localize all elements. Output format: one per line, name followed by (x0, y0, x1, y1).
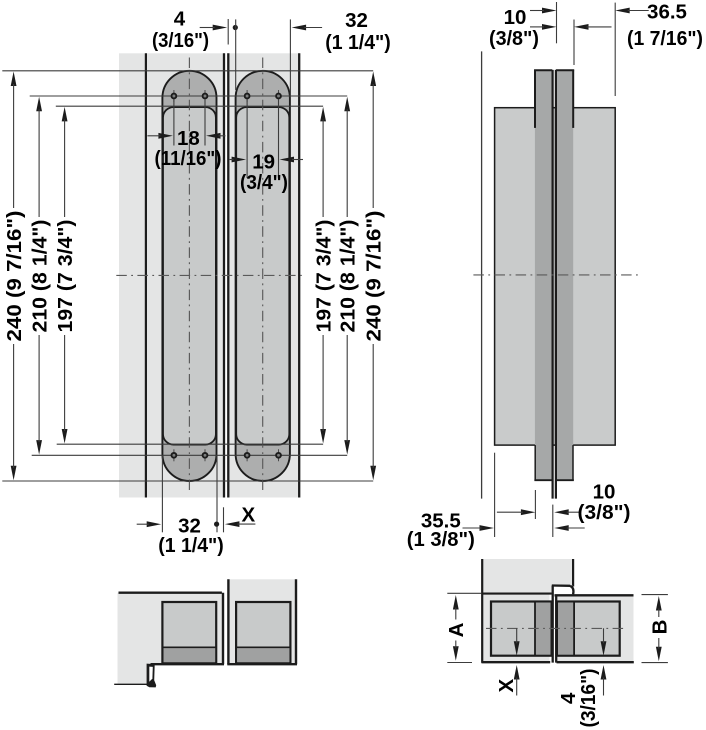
svg-text:210 (8 1/4"): 210 (8 1/4") (28, 220, 51, 333)
svg-text:(3/16"): (3/16") (152, 29, 209, 52)
svg-text:(3/16"): (3/16") (577, 669, 600, 728)
svg-text:210 (8 1/4"): 210 (8 1/4") (337, 220, 360, 333)
svg-text:X: X (495, 678, 518, 692)
svg-text:(1 1/4"): (1 1/4") (325, 31, 391, 54)
svg-text:197 (7 3/4"): 197 (7 3/4") (312, 220, 335, 333)
svg-text:(11/16"): (11/16") (155, 147, 222, 170)
svg-text:(3/8"): (3/8") (489, 27, 539, 50)
svg-text:(1 7/16"): (1 7/16") (627, 27, 703, 50)
svg-text:(1 3/8"): (1 3/8") (407, 528, 475, 551)
svg-text:(3/4"): (3/4") (240, 171, 288, 194)
svg-text:197 (7 3/4"): 197 (7 3/4") (54, 220, 77, 333)
svg-text:10: 10 (504, 6, 527, 29)
svg-text:(3/8"): (3/8") (578, 501, 631, 524)
svg-text:B: B (648, 620, 671, 635)
svg-text:36.5: 36.5 (647, 1, 687, 24)
svg-text:32: 32 (345, 9, 368, 32)
svg-text:240 (9 7/16"): 240 (9 7/16") (363, 211, 386, 342)
svg-text:A: A (445, 622, 468, 637)
svg-text:X: X (242, 504, 256, 527)
svg-text:(1 1/4"): (1 1/4") (158, 534, 224, 557)
svg-text:240 (9 7/16"): 240 (9 7/16") (3, 211, 26, 342)
svg-text:4: 4 (174, 7, 186, 30)
